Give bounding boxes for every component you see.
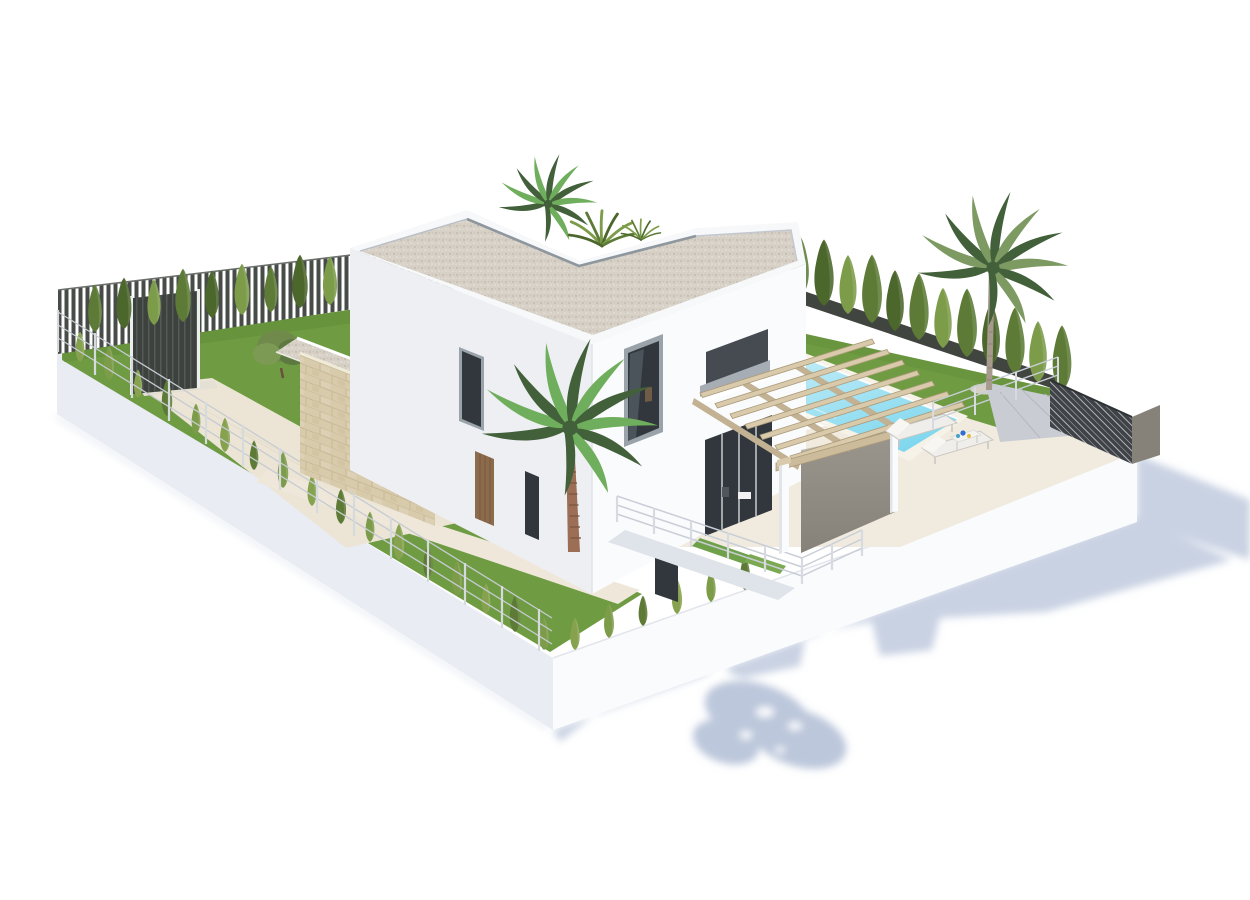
upper-slot-window [459,347,484,431]
pool-toy-teal [956,434,960,438]
pool-toy-blue [960,430,965,435]
lower-slot-window [525,471,539,540]
render-canvas [0,0,1250,900]
front-door [475,451,494,526]
villa-render [0,0,1250,900]
pool-toy-yellow [967,434,971,438]
interior-table [738,492,751,499]
interior-chair [722,487,729,497]
